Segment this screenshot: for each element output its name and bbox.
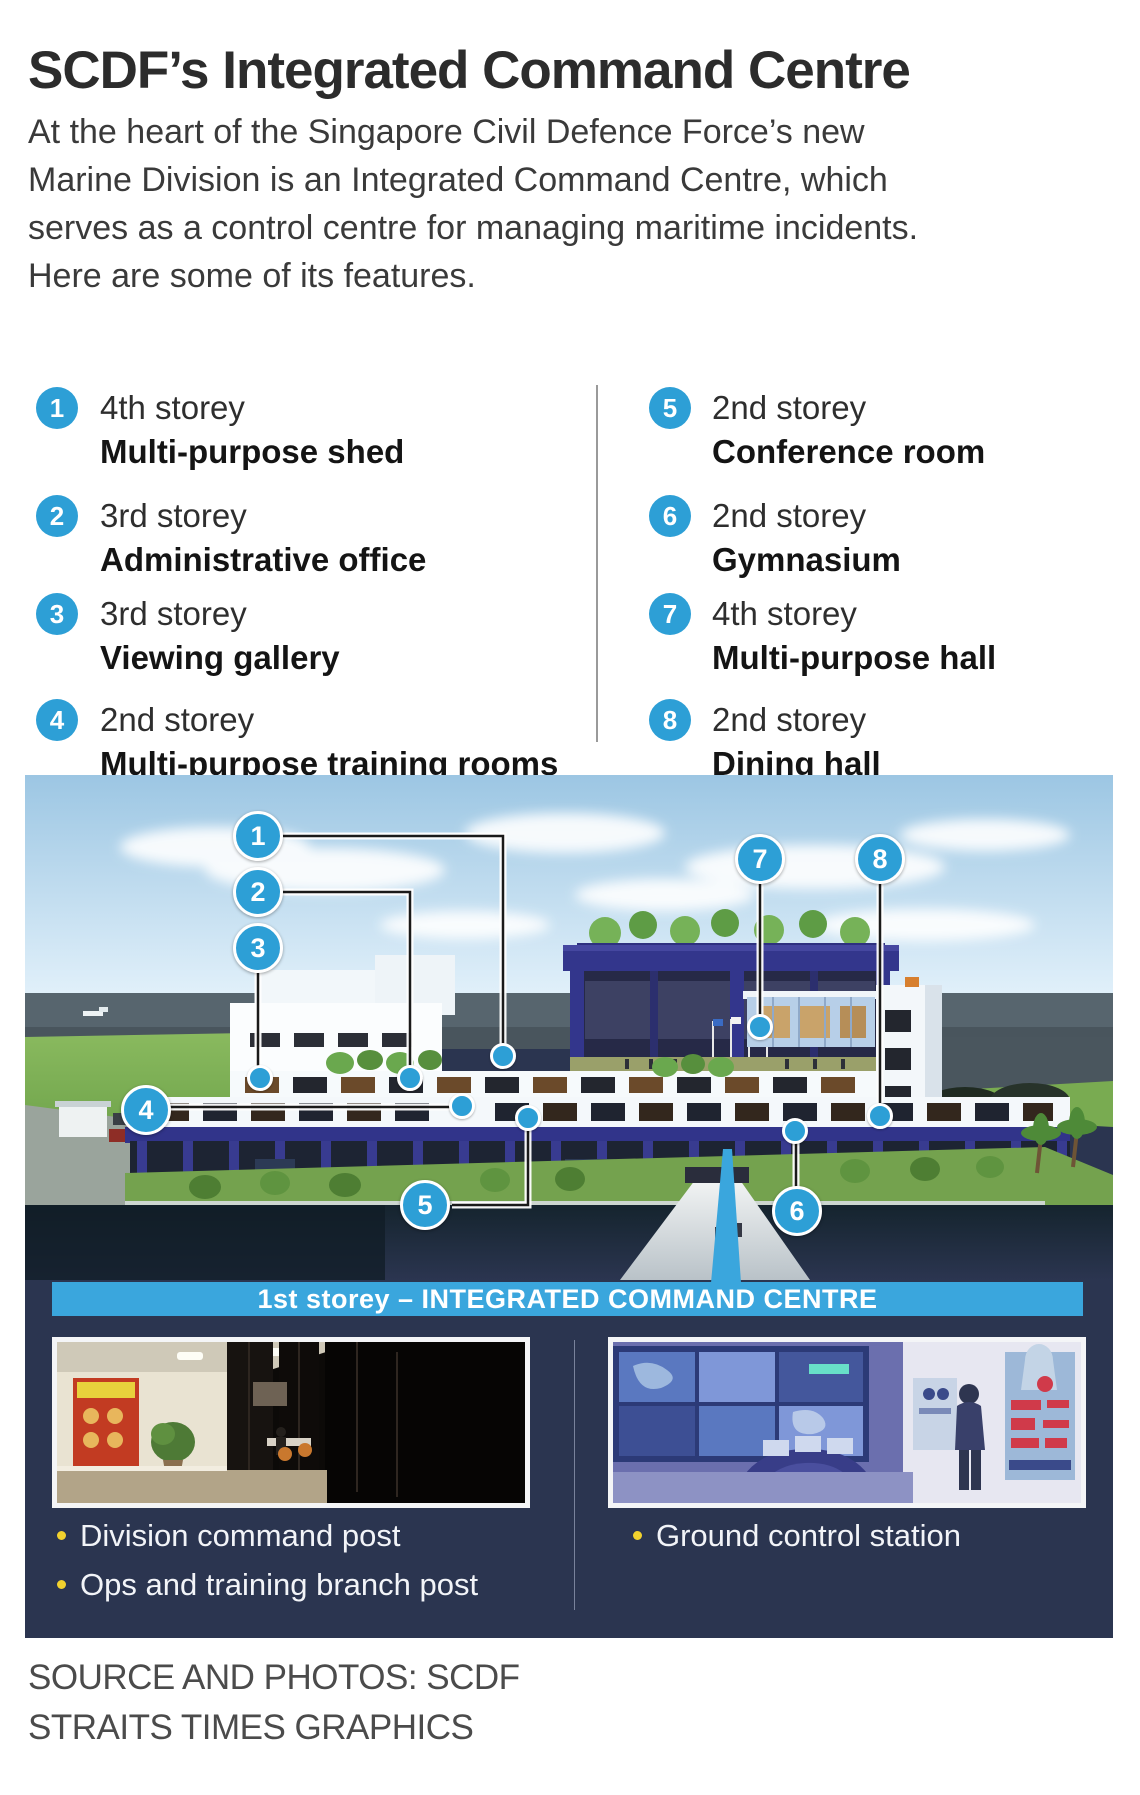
feature-4-badge: 4 (36, 699, 78, 741)
diagram-marker-3: 3 (233, 923, 283, 973)
column-divider (596, 385, 598, 742)
feature-7: 4th storey Multi-purpose hall (712, 592, 996, 680)
feature-name: Gymnasium (712, 538, 901, 582)
diagram-marker-8: 8 (855, 834, 905, 884)
feature-storey: 4th storey (100, 386, 404, 430)
diagram-marker-2: 2 (233, 867, 283, 917)
diagram-marker-6: 6 (772, 1186, 822, 1236)
feature-6: 2nd storey Gymnasium (712, 494, 901, 582)
anchor-dot-5 (515, 1105, 541, 1131)
feature-storey: 2nd storey (712, 494, 901, 538)
anchor-dot-3 (247, 1065, 273, 1091)
intro-line: Marine Division is an Integrated Command… (28, 156, 918, 204)
anchor-dot-4 (449, 1093, 475, 1119)
building-diagram-panel: 1 2 3 4 5 6 7 8 1st storey – INTEGRATED … (25, 775, 1113, 1638)
intro-paragraph: At the heart of the Singapore Civil Defe… (28, 108, 918, 300)
graphics-credit: STRAITS TIMES GRAPHICS (28, 1708, 473, 1748)
photo-ground-control-station (608, 1337, 1086, 1508)
caption-item: Ops and training branch post (57, 1560, 478, 1609)
diagram-marker-5: 5 (400, 1180, 450, 1230)
feature-1: 4th storey Multi-purpose shed (100, 386, 404, 474)
feature-storey: 2nd storey (712, 698, 881, 742)
feature-storey: 3rd storey (100, 494, 426, 538)
feature-storey: 2nd storey (100, 698, 558, 742)
feature-5: 2nd storey Conference room (712, 386, 985, 474)
caption-text: Division command post (80, 1518, 400, 1554)
feature-4: 2nd storey Multi-purpose training rooms (100, 698, 558, 786)
anchor-dot-2 (397, 1065, 423, 1091)
caption-item: Division command post (57, 1511, 478, 1560)
anchor-dot-8 (867, 1103, 893, 1129)
intro-line: serves as a control centre for managing … (28, 204, 918, 252)
feature-3: 3rd storey Viewing gallery (100, 592, 340, 680)
left-photo-captions: Division command post Ops and training b… (57, 1511, 478, 1609)
feature-8-badge: 8 (649, 699, 691, 741)
intro-line: Here are some of its features. (28, 252, 918, 300)
feature-storey: 4th storey (712, 592, 996, 636)
page-title: SCDF’s Integrated Command Centre (28, 40, 910, 101)
caption-text: Ops and training branch post (80, 1567, 478, 1603)
first-storey-banner: 1st storey – INTEGRATED COMMAND CENTRE (52, 1282, 1083, 1316)
diagram-marker-1: 1 (233, 811, 283, 861)
intro-line: At the heart of the Singapore Civil Defe… (28, 108, 918, 156)
feature-storey: 2nd storey (712, 386, 985, 430)
building-rendering (25, 775, 1113, 1280)
feature-name: Conference room (712, 430, 985, 474)
feature-name: Multi-purpose hall (712, 636, 996, 680)
source-credit: SOURCE AND PHOTOS: SCDF (28, 1658, 520, 1698)
anchor-dot-7 (747, 1014, 773, 1040)
diagram-marker-4: 4 (121, 1085, 171, 1135)
caption-divider (574, 1340, 575, 1610)
feature-2: 3rd storey Administrative office (100, 494, 426, 582)
feature-6-badge: 6 (649, 495, 691, 537)
caption-text: Ground control station (656, 1518, 961, 1554)
photo-division-command-post (52, 1337, 530, 1508)
bullet-icon (57, 1580, 66, 1589)
anchor-dot-1 (490, 1043, 516, 1069)
feature-8: 2nd storey Dining hall (712, 698, 881, 786)
feature-name: Viewing gallery (100, 636, 340, 680)
feature-storey: 3rd storey (100, 592, 340, 636)
feature-5-badge: 5 (649, 387, 691, 429)
diagram-marker-7: 7 (735, 834, 785, 884)
right-photo-captions: Ground control station (633, 1511, 961, 1560)
feature-name: Multi-purpose shed (100, 430, 404, 474)
feature-name: Administrative office (100, 538, 426, 582)
feature-2-badge: 2 (36, 495, 78, 537)
bullet-icon (57, 1531, 66, 1540)
feature-1-badge: 1 (36, 387, 78, 429)
bullet-icon (633, 1531, 642, 1540)
anchor-dot-6 (782, 1118, 808, 1144)
caption-item: Ground control station (633, 1511, 961, 1560)
feature-7-badge: 7 (649, 593, 691, 635)
feature-3-badge: 3 (36, 593, 78, 635)
infographic-page: SCDF’s Integrated Command Centre At the … (0, 0, 1140, 1795)
